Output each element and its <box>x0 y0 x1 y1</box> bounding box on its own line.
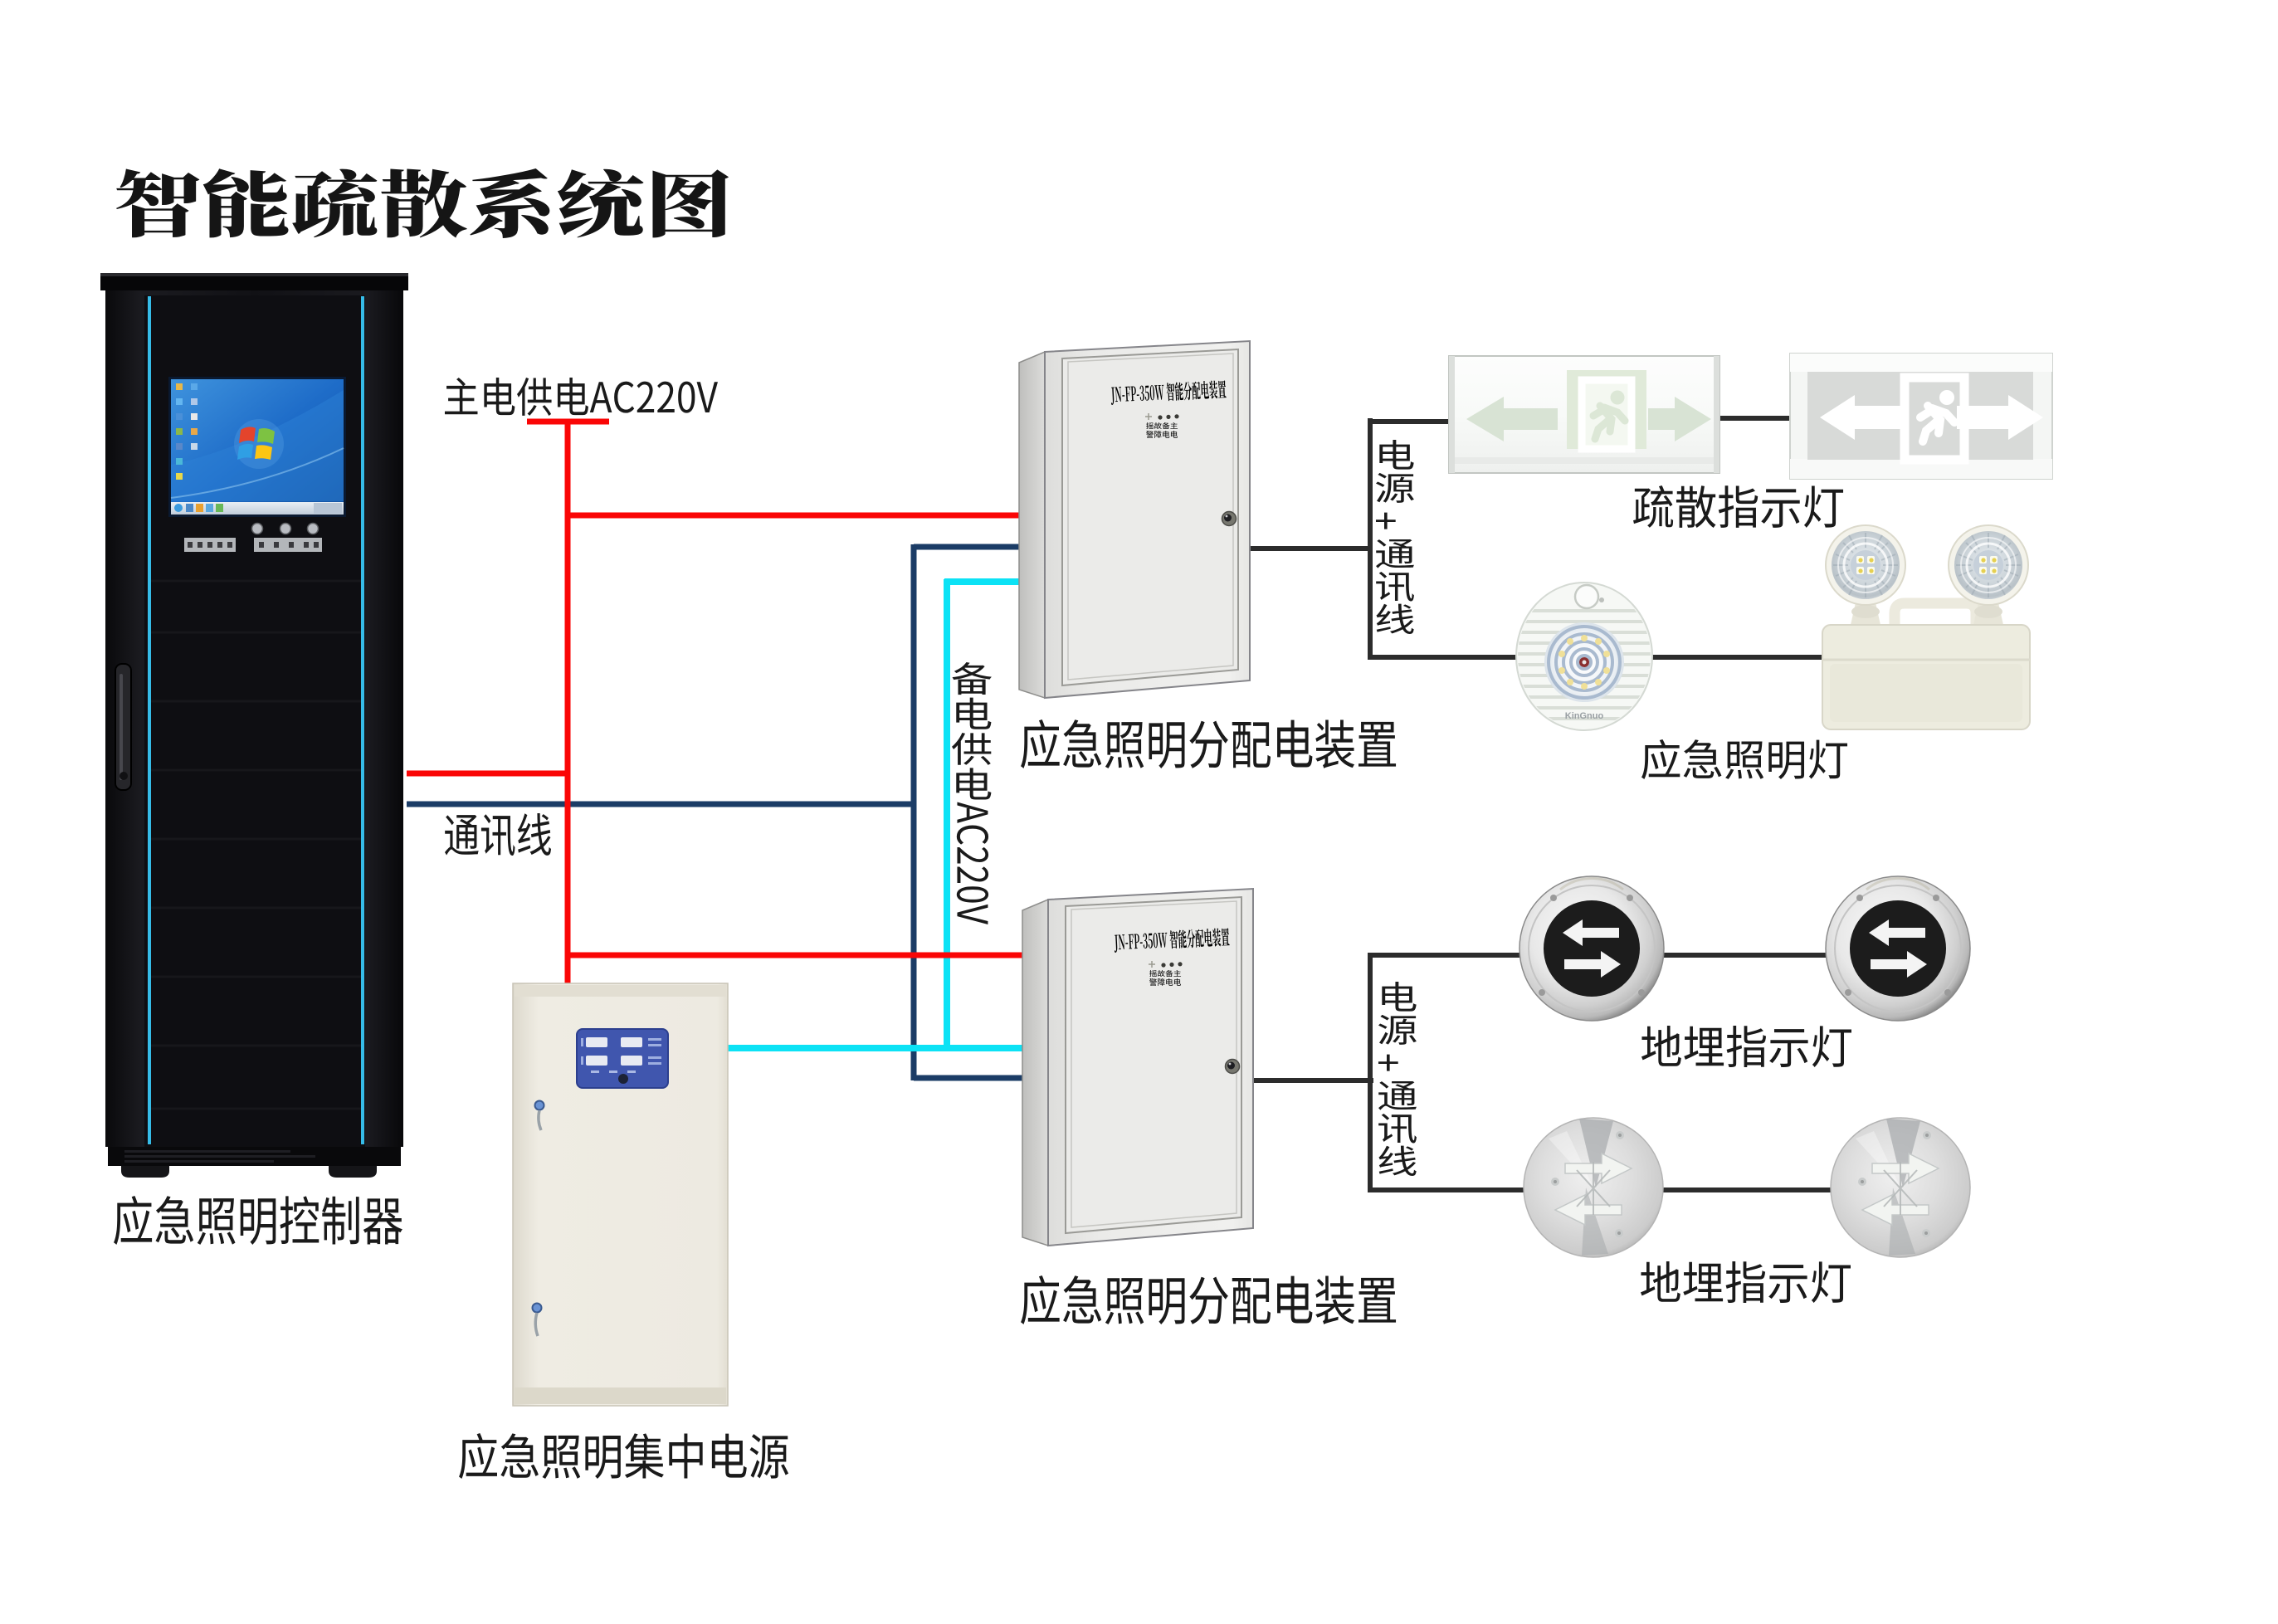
svg-text:KinGnuo: KinGnuo <box>1565 711 1604 721</box>
